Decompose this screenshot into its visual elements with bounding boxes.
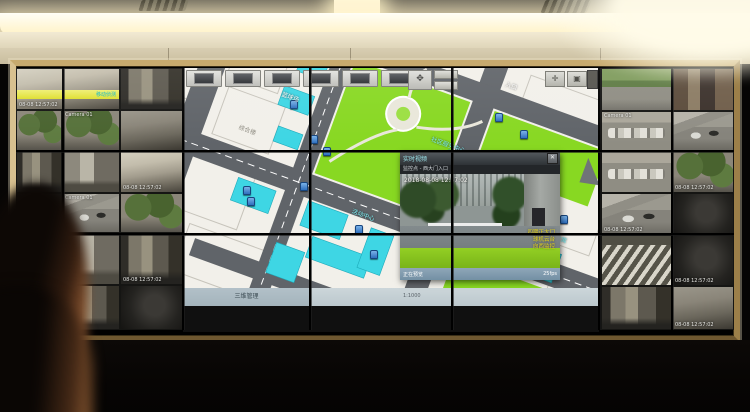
camera-feed[interactable]: 移动侦测 08-08 12:57:02: [16, 68, 120, 110]
floor-shadow: [0, 340, 750, 412]
camera-feed[interactable]: [120, 193, 183, 233]
map-bottom-bar: 三维管理 1:1000: [183, 288, 599, 306]
camera-feed[interactable]: Camera 01: [601, 111, 672, 151]
panel-bezel: [16, 233, 734, 236]
map-camera-icon[interactable]: [520, 130, 528, 139]
control-room-photo: 移动侦测 08-08 12:57:02 Camera 01 08-08 12:5…: [0, 0, 750, 412]
camera-feed[interactable]: 08-08 12:57:02: [672, 151, 734, 193]
ceiling-light-glare: [555, 0, 750, 80]
popup-title: 实时视频: [403, 154, 547, 163]
popup-status-bar: 正在预览 25fps: [400, 268, 560, 280]
map-camera-icon[interactable]: [495, 113, 503, 122]
camera-feed[interactable]: [62, 151, 120, 193]
toolbar-camera-button[interactable]: [264, 70, 300, 87]
live-video-popup[interactable]: 实时视频 ✕ 监控点 - 西大门入口 2018-08-08 12:57:02 四…: [400, 152, 560, 280]
gis-map[interactable]: 入口 社区服务中心 活动中心 综合楼 学生公寓 篮球场 ✥ ✛ ▣ 三维管理 1…: [183, 68, 599, 332]
map-scale-label: 1:1000: [403, 293, 421, 299]
toolbar-camera-button[interactable]: [225, 70, 261, 87]
toolbar-camera-button[interactable]: [342, 70, 378, 87]
camera-feed[interactable]: [672, 111, 734, 151]
popup-titlebar[interactable]: 实时视频 ✕: [400, 152, 560, 165]
camera-feed[interactable]: [120, 285, 183, 330]
popup-camera-info: 监控点 - 西大门入口: [400, 165, 560, 174]
video-trees: [400, 180, 472, 228]
panel-bezel: [182, 68, 185, 330]
camera-feed[interactable]: 08-08 12:57:02: [601, 193, 672, 235]
map-camera-icon[interactable]: [560, 215, 568, 224]
panel-bezel: [671, 68, 674, 330]
map-camera-icon[interactable]: [370, 250, 378, 259]
toolbar-chip[interactable]: [434, 70, 458, 79]
video-pillar-window: [532, 208, 545, 227]
camera-feed[interactable]: [16, 110, 62, 151]
camera-feed[interactable]: [120, 110, 183, 151]
video-timestamp: 2018-08-08 12:57:02: [404, 177, 468, 184]
tab-3d-management[interactable]: 三维管理: [183, 288, 310, 306]
camera-feed[interactable]: 08-08 12:57:02: [672, 286, 734, 330]
monitor-icon: [311, 73, 331, 84]
panel-bezel: [16, 150, 734, 153]
map-toolbar: [186, 70, 417, 86]
camera-feed[interactable]: 08-08 12:57:02: [120, 151, 183, 193]
panel-bezel: [451, 68, 454, 330]
camera-feed[interactable]: [601, 286, 672, 330]
monitor-icon: [194, 73, 214, 84]
camera-feed[interactable]: [120, 68, 183, 110]
toolbar-camera-button[interactable]: [186, 70, 222, 87]
pan-control-icon[interactable]: ✥: [408, 70, 432, 90]
video-lawn: [400, 248, 560, 268]
camera-feed[interactable]: [672, 193, 734, 235]
alert-banner: 移动侦测: [17, 90, 119, 100]
toolbar-chip[interactable]: [434, 81, 458, 90]
right-camera-wall: Camera 01 08-08 12:57:02 08-08 12:57:02 …: [601, 68, 734, 330]
map-camera-icon[interactable]: [247, 197, 255, 206]
popup-video[interactable]: 2018-08-08 12:57:02 四期正大门 球机云台 向西监控: [400, 174, 560, 268]
panel-bezel: [309, 68, 312, 330]
map-off-area: [183, 306, 599, 332]
map-camera-icon[interactable]: [300, 182, 308, 191]
camera-feed[interactable]: 08-08 12:57:02: [120, 233, 183, 285]
monitor-icon: [389, 73, 409, 84]
camera-feed[interactable]: [601, 235, 672, 286]
panel-bezel: [598, 68, 601, 330]
monitor-icon: [272, 73, 292, 84]
map-camera-icon[interactable]: [243, 186, 251, 195]
camera-feed[interactable]: Camera 01: [62, 110, 120, 151]
monitor-icon: [350, 73, 370, 84]
close-icon[interactable]: ✕: [547, 153, 558, 164]
air-vent: [138, 0, 189, 11]
monitor-icon: [233, 73, 253, 84]
camera-feed[interactable]: [601, 151, 672, 193]
camera-feed[interactable]: 08-08 12:57:02: [672, 235, 734, 286]
toolbar-chips: [434, 70, 458, 90]
